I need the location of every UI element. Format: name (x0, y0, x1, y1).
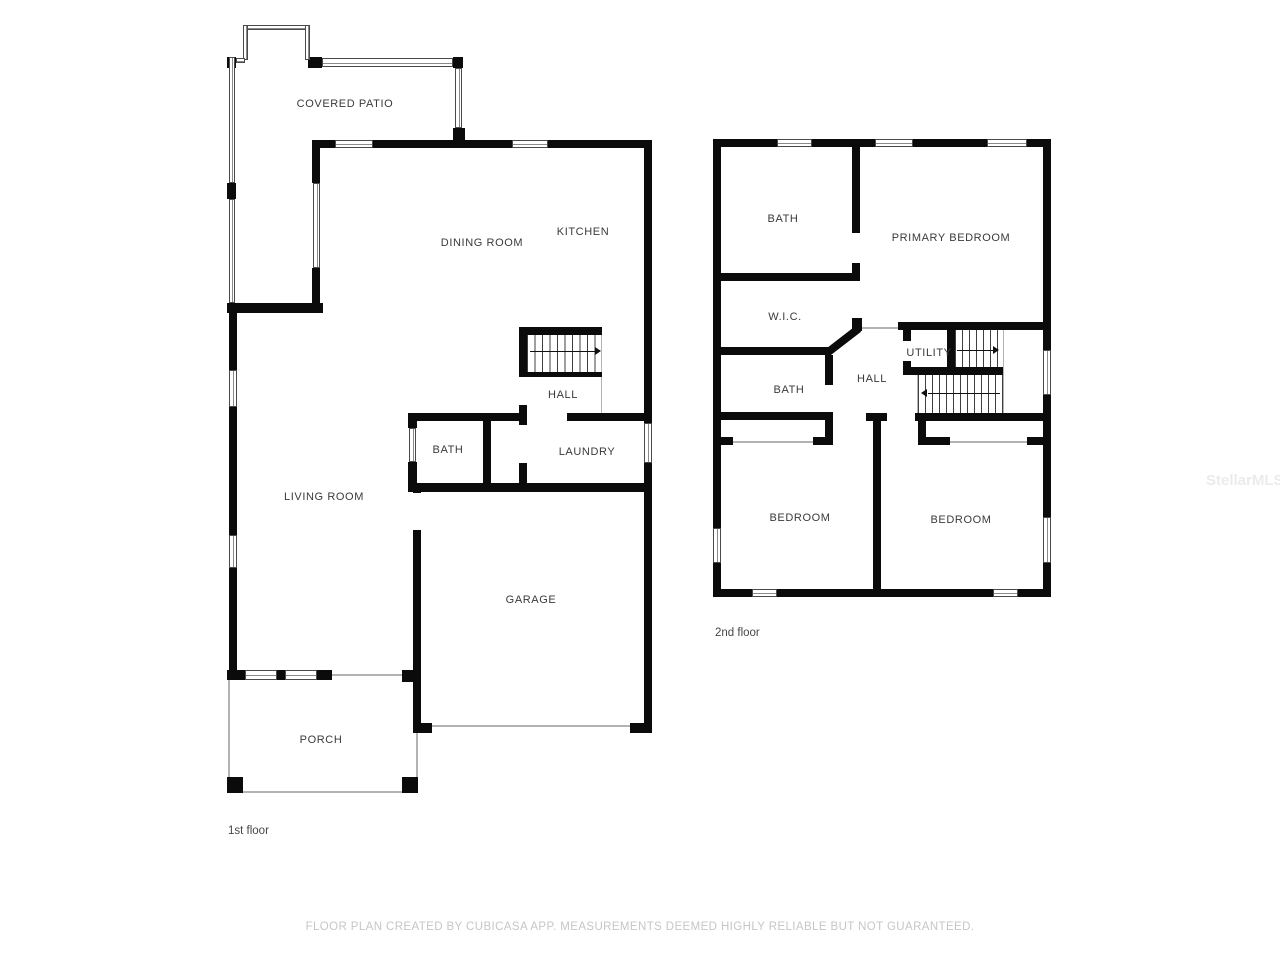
patio-post (308, 57, 322, 68)
wall-closet (918, 437, 950, 445)
entry-opening (332, 674, 402, 676)
patio-outline (243, 25, 248, 60)
window (993, 589, 1018, 597)
stellar-mls-watermark: StellarMLS (1206, 472, 1280, 489)
wall-stairs-south (519, 372, 602, 377)
room-label-living-room: LIVING ROOM (284, 491, 364, 503)
wall-garage-south (630, 723, 652, 733)
closet-opening (733, 441, 813, 443)
wall-wic-south (713, 347, 830, 355)
wall-garage-south (413, 723, 432, 733)
patio-outline (229, 199, 235, 303)
room-label-covered-patio: COVERED PATIO (297, 98, 394, 110)
wall-bath-south (713, 273, 860, 281)
room-label-utility: UTILITY (906, 347, 951, 359)
wall-primary-south (898, 322, 1043, 330)
room-label-laundry: LAUNDRY (559, 446, 616, 458)
window (229, 535, 237, 568)
room-label-bath-mid: BATH (774, 384, 805, 396)
room-label-kitchen: KITCHEN (557, 226, 609, 238)
patio-post (453, 57, 463, 68)
room-label-hall: HALL (857, 373, 887, 385)
room-label-garage: GARAGE (506, 594, 557, 606)
wall-closet-east (519, 463, 527, 483)
window (335, 140, 373, 148)
wall-garage-north (408, 483, 652, 492)
wall-stairs-west (519, 327, 527, 377)
room-label-bedroom-right: BEDROOM (930, 514, 991, 526)
wall-bath-north (408, 413, 523, 421)
wall-living-south (227, 670, 245, 680)
porch-post (402, 777, 418, 793)
wall-closet (813, 437, 833, 445)
staircase-treads-lower (918, 375, 1003, 413)
window (713, 528, 721, 563)
stairs-direction-arrow-head (921, 389, 927, 397)
window (1043, 350, 1051, 395)
room-label-bedroom-left: BEDROOM (769, 512, 830, 524)
wall-living-west (229, 313, 237, 672)
window (229, 370, 237, 407)
stairs-direction-arrow-head (595, 347, 601, 355)
porch-post (227, 777, 243, 793)
patio-outline (243, 25, 310, 30)
closet-opening (950, 441, 1027, 443)
room-label-bath-upper: BATH (768, 213, 799, 225)
stairs-direction-arrow (928, 393, 1000, 394)
bath-door-opening (409, 428, 416, 462)
stair-edge (917, 375, 918, 413)
room-label-primary-bedroom: PRIMARY BEDROOM (892, 232, 1011, 244)
room-label-wic: W.I.C. (768, 311, 802, 323)
wall-living-south (277, 670, 285, 680)
wall-nub (852, 263, 860, 281)
floor-label-1st: 1st floor (228, 825, 269, 837)
patio-slider-door (313, 183, 320, 268)
wall-bedroom-divider (873, 421, 881, 589)
window (644, 423, 652, 463)
staircase-treads (527, 335, 602, 372)
stairs-direction-arrow (530, 351, 597, 352)
window (875, 139, 913, 147)
primary-bedroom-opening (862, 327, 898, 329)
wall-stairs-south (915, 413, 1043, 421)
patio-outline (455, 68, 462, 128)
disclaimer-text: FLOOR PLAN CREATED BY CUBICASA APP. MEAS… (0, 921, 1280, 933)
patio-post (227, 183, 236, 199)
wall-laundry-north (567, 413, 644, 421)
wall-bath2-south (713, 412, 833, 420)
wall-closet (1027, 437, 1045, 445)
window (285, 670, 317, 680)
stairwell-edge (1003, 330, 1004, 413)
wall-utility-west (903, 330, 911, 341)
window (245, 670, 277, 680)
room-label-dining-room: DINING ROOM (441, 237, 523, 249)
window (752, 589, 777, 597)
patio-outline (322, 58, 453, 67)
patio-outline (305, 25, 310, 60)
room-label-bath: BATH (433, 444, 464, 456)
floor-plan-image: COVERED PATIO DINING ROOM KITCHEN HALL B… (0, 0, 1280, 960)
wall-stairs-divider (903, 367, 1003, 375)
room-label-porch: PORCH (300, 734, 343, 746)
floor-label-2nd: 2nd floor (715, 627, 760, 639)
wall-garage-west (413, 530, 421, 733)
stairs-direction-arrow (957, 350, 995, 351)
wall-bath-primary-divider (852, 139, 860, 233)
wall-bath-west (408, 462, 417, 492)
patio-outline (236, 58, 245, 63)
wall-diagonal (825, 325, 862, 356)
patio-outline (229, 57, 235, 183)
window (777, 139, 812, 147)
porch-outline (228, 791, 418, 793)
wall-closet (713, 437, 733, 445)
wall-stairs-north (519, 327, 602, 335)
stairs-direction-arrow-head (993, 346, 999, 354)
room-label-hall: HALL (548, 389, 578, 401)
wall-bath2-east (825, 355, 833, 385)
wall-hall-nub (519, 405, 527, 425)
wall-west-upper (312, 140, 320, 183)
wall-living-north (227, 303, 323, 313)
wall-bath-west (408, 413, 417, 428)
wall-bath-east (483, 421, 491, 483)
window (987, 139, 1027, 147)
window (512, 140, 548, 148)
wall-living-south (317, 670, 332, 680)
garage-door-opening (432, 725, 630, 727)
window (1043, 517, 1051, 563)
wall-divider-cap (866, 413, 887, 421)
